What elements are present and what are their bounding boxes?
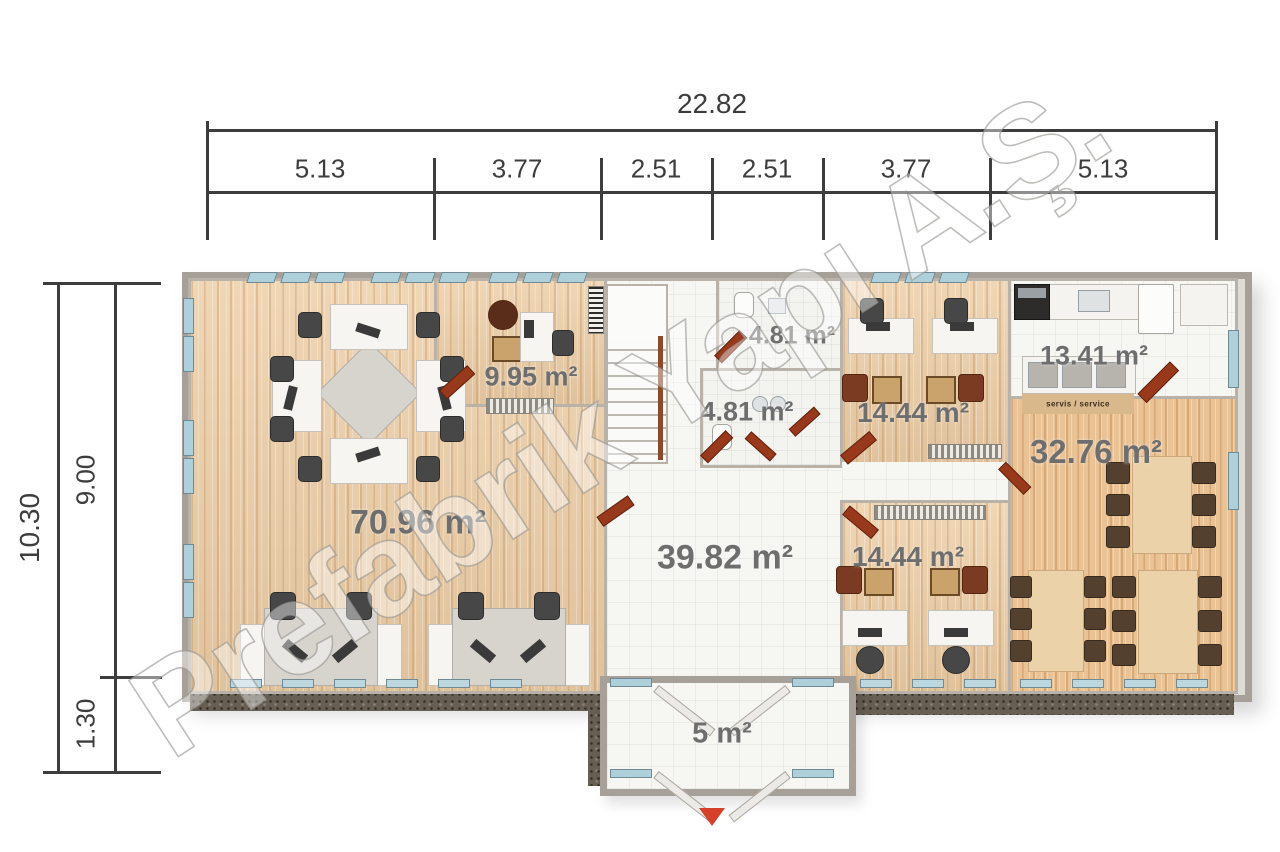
area-label-office-upper-right: 14.44 m² bbox=[857, 397, 969, 429]
office-chair bbox=[944, 298, 968, 324]
dining-chair bbox=[1112, 610, 1136, 632]
window bbox=[183, 420, 194, 456]
office-chair bbox=[534, 592, 560, 620]
office-chair bbox=[856, 646, 884, 674]
window bbox=[860, 679, 892, 688]
window bbox=[792, 678, 834, 687]
dining-chair bbox=[1010, 608, 1032, 630]
office-chair bbox=[416, 312, 440, 338]
window bbox=[183, 298, 194, 334]
side-table bbox=[492, 336, 522, 362]
dining-chair bbox=[1112, 576, 1136, 598]
dining-table bbox=[1028, 570, 1084, 672]
floor-plan-image: 22.82 5.13 3.77 2.51 2.51 3.77 5.13 10.3… bbox=[0, 0, 1280, 852]
armchair bbox=[962, 566, 988, 594]
dining-chair bbox=[1112, 644, 1136, 666]
dim-line-total-top bbox=[207, 129, 1217, 132]
dim-tick bbox=[711, 158, 714, 240]
dining-chair bbox=[1198, 644, 1222, 666]
service-counter-label: servis / service bbox=[1046, 400, 1110, 409]
dim-segment: 3.77 bbox=[492, 154, 543, 185]
office-chair bbox=[942, 646, 970, 674]
dining-chair bbox=[1106, 494, 1130, 516]
window bbox=[1176, 679, 1208, 688]
area-label-vestibule: 5 m² bbox=[692, 718, 752, 751]
office-chair bbox=[458, 592, 484, 620]
desk-cluster-4 bbox=[428, 588, 588, 688]
area-label-wc-upper: 4.81 m² bbox=[749, 322, 835, 351]
dim-tick bbox=[600, 158, 603, 240]
office-chair bbox=[860, 298, 884, 324]
area-label-wc-lower: 4.81 m² bbox=[700, 397, 793, 428]
window bbox=[1072, 679, 1104, 688]
monitor bbox=[950, 322, 974, 331]
window bbox=[404, 272, 436, 283]
dim-tick bbox=[206, 121, 209, 240]
window bbox=[282, 679, 314, 688]
office-chair bbox=[298, 456, 322, 482]
radiator bbox=[486, 398, 554, 414]
desk bbox=[330, 438, 408, 484]
office-chair bbox=[270, 356, 294, 382]
window bbox=[1228, 330, 1239, 388]
office-chair bbox=[298, 312, 322, 338]
window bbox=[183, 582, 194, 618]
window bbox=[246, 272, 278, 283]
desk-pedestal bbox=[562, 624, 590, 686]
dim-line-total-left bbox=[57, 283, 60, 773]
area-label-dining-hall: 32.76 m² bbox=[1030, 433, 1162, 471]
window bbox=[522, 272, 554, 283]
dim-segment: 5.13 bbox=[1078, 154, 1129, 185]
window bbox=[870, 272, 902, 283]
dining-chair bbox=[1106, 526, 1130, 548]
window bbox=[230, 679, 262, 688]
area-label-office: 9.95 m² bbox=[484, 362, 577, 393]
dim-segment: 2.51 bbox=[742, 154, 793, 185]
range-hood-icon bbox=[1018, 288, 1046, 298]
window bbox=[1228, 452, 1239, 510]
refrigerator bbox=[1138, 284, 1174, 334]
stair-railing bbox=[658, 336, 663, 460]
window bbox=[183, 544, 194, 580]
dim-tick bbox=[1215, 121, 1218, 240]
monitor bbox=[866, 322, 890, 331]
window bbox=[488, 272, 520, 283]
dining-chair bbox=[1192, 494, 1216, 516]
window bbox=[183, 336, 194, 372]
window bbox=[792, 769, 834, 778]
area-label-office-lower-right: 14.44 m² bbox=[852, 541, 964, 573]
window bbox=[1020, 679, 1052, 688]
area-label-kitchen: 13.41 m² bbox=[1040, 341, 1148, 372]
dining-chair bbox=[1084, 640, 1106, 662]
dining-chair bbox=[1198, 576, 1222, 598]
window bbox=[610, 769, 652, 778]
office-chair bbox=[440, 416, 464, 442]
dim-total-height: 10.30 bbox=[14, 493, 46, 563]
dining-table bbox=[1138, 570, 1198, 674]
kitchen-sink bbox=[1078, 290, 1110, 312]
office-chair bbox=[416, 456, 440, 482]
office-chair bbox=[346, 592, 372, 620]
window bbox=[183, 458, 194, 494]
window bbox=[904, 272, 936, 283]
window bbox=[314, 272, 346, 283]
window bbox=[912, 679, 944, 688]
desk-cluster-4 bbox=[240, 588, 400, 688]
radiator bbox=[874, 505, 986, 520]
desk-pedestal bbox=[374, 624, 402, 686]
office-chair bbox=[270, 592, 296, 620]
dim-tick bbox=[822, 158, 825, 240]
shelf-unit bbox=[588, 286, 604, 334]
dim-segment: 5.13 bbox=[295, 154, 346, 185]
dim-segment: 9.00 bbox=[71, 455, 102, 506]
dim-segment: 3.77 bbox=[881, 154, 932, 185]
window bbox=[490, 679, 522, 688]
dim-segment: 2.51 bbox=[631, 154, 682, 185]
window bbox=[964, 679, 996, 688]
window bbox=[386, 679, 418, 688]
window bbox=[938, 272, 970, 283]
dining-chair bbox=[1010, 576, 1032, 598]
monitor bbox=[944, 628, 968, 637]
dim-tick bbox=[433, 158, 436, 240]
dining-chair bbox=[1192, 462, 1216, 484]
office-chair bbox=[270, 416, 294, 442]
office-chair bbox=[552, 330, 574, 356]
corridor bbox=[842, 462, 1010, 502]
dim-tick bbox=[989, 158, 992, 240]
dim-line-segments-left bbox=[114, 283, 117, 773]
upper-cabinet bbox=[1180, 284, 1228, 326]
window bbox=[556, 272, 588, 283]
sink bbox=[768, 298, 786, 314]
dim-segment: 1.30 bbox=[71, 699, 102, 750]
dim-tick bbox=[43, 282, 161, 285]
dim-tick bbox=[43, 771, 161, 774]
dining-chair bbox=[1198, 610, 1222, 632]
monitor bbox=[524, 320, 534, 338]
dining-chair bbox=[1010, 640, 1032, 662]
radiator bbox=[928, 444, 1002, 459]
area-label-hall: 39.82 m² bbox=[657, 539, 793, 578]
window bbox=[438, 272, 470, 283]
window bbox=[438, 679, 470, 688]
dim-total-width: 22.82 bbox=[677, 88, 747, 120]
desk-cluster-8 bbox=[268, 298, 468, 488]
dim-tick bbox=[100, 676, 162, 679]
desk bbox=[317, 341, 422, 446]
armchair bbox=[488, 300, 518, 330]
monitor bbox=[858, 628, 882, 637]
entrance-arrow-icon bbox=[699, 808, 725, 826]
window bbox=[1124, 679, 1156, 688]
window bbox=[280, 272, 312, 283]
dining-chair bbox=[1192, 526, 1216, 548]
area-label-open-office: 70.96 m² bbox=[350, 504, 486, 543]
window bbox=[370, 272, 402, 283]
toilet bbox=[734, 292, 754, 318]
window bbox=[334, 679, 366, 688]
window bbox=[610, 678, 652, 687]
dining-chair bbox=[1084, 576, 1106, 598]
dining-chair bbox=[1084, 608, 1106, 630]
